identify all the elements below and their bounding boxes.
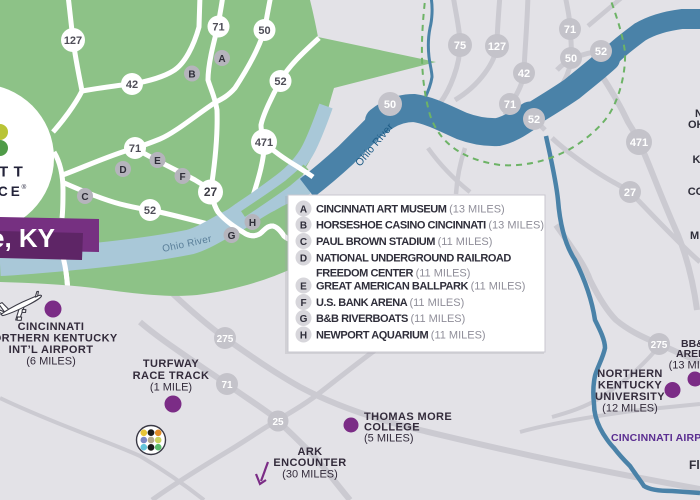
- svg-text:27: 27: [624, 187, 636, 199]
- svg-text:71: 71: [221, 380, 233, 391]
- svg-text:F: F: [179, 172, 185, 183]
- svg-text:OH: OH: [688, 119, 700, 131]
- svg-text:UNIVERSITY: UNIVERSITY: [595, 391, 665, 403]
- svg-text:e, KY: e, KY: [0, 223, 55, 253]
- svg-text:CINCINNATI ART MUSEUM (13 MILE: CINCINNATI ART MUSEUM (13 MILES): [316, 204, 505, 216]
- svg-text:71: 71: [212, 22, 224, 34]
- svg-text:471: 471: [255, 137, 273, 149]
- svg-text:D: D: [300, 254, 307, 265]
- svg-text:(6 MILES): (6 MILES): [26, 356, 76, 368]
- svg-text:50: 50: [384, 99, 396, 111]
- svg-text:52: 52: [144, 205, 156, 217]
- svg-text:CINCINNATI: CINCINNATI: [18, 321, 85, 333]
- svg-text:NORTHERN KENTUCKY: NORTHERN KENTUCKY: [0, 333, 118, 345]
- svg-text:127: 127: [488, 41, 506, 53]
- svg-text:50: 50: [258, 25, 270, 37]
- svg-text:CE: CE: [0, 184, 23, 199]
- svg-text:HORSESHOE CASINO CINCINNATI (1: HORSESHOE CASINO CINCINNATI (13 MILES): [316, 220, 544, 232]
- svg-text:®: ®: [22, 183, 27, 191]
- svg-text:PAUL BROWN STADIUM (11 MILES): PAUL BROWN STADIUM (11 MILES): [316, 236, 492, 248]
- svg-text:B: B: [300, 221, 307, 232]
- svg-text:275: 275: [651, 340, 668, 351]
- svg-text:25: 25: [272, 417, 284, 428]
- svg-text:B&B RIVERBOATS (11 MILES): B&B RIVERBOATS (11 MILES): [316, 313, 465, 325]
- svg-text:CINCINNATI AIRPORT: CINCINNATI AIRPORT: [611, 432, 700, 444]
- svg-text:(12 MILES): (12 MILES): [602, 403, 658, 415]
- svg-text:E: E: [300, 282, 307, 293]
- svg-text:50: 50: [565, 53, 577, 65]
- svg-text:H: H: [249, 218, 256, 229]
- svg-text:A: A: [218, 54, 225, 65]
- svg-text:CO: CO: [688, 186, 700, 198]
- svg-text:TURFWAY: TURFWAY: [143, 358, 199, 370]
- svg-text:KENTUCKY: KENTUCKY: [598, 380, 663, 392]
- svg-text:G: G: [300, 314, 308, 325]
- svg-text:FREEDOM CENTER (11 MILES): FREEDOM CENTER (11 MILES): [316, 268, 470, 280]
- svg-text:71: 71: [504, 99, 516, 111]
- svg-text:52: 52: [595, 46, 607, 58]
- svg-text:G: G: [228, 231, 236, 242]
- svg-text:C: C: [81, 192, 88, 203]
- svg-text:52: 52: [274, 76, 286, 88]
- svg-text:42: 42: [126, 79, 138, 91]
- svg-text:52: 52: [528, 114, 540, 126]
- svg-text:(30 MILES): (30 MILES): [282, 469, 338, 481]
- svg-text:NORTHERN: NORTHERN: [597, 368, 663, 380]
- svg-text:H: H: [300, 331, 307, 342]
- svg-text:E: E: [154, 156, 161, 167]
- svg-text:K: K: [693, 154, 700, 166]
- svg-text:U.S. BANK ARENA (11 MILES): U.S. BANK ARENA (11 MILES): [316, 297, 464, 309]
- svg-text:A: A: [300, 205, 307, 216]
- svg-text:275: 275: [217, 334, 234, 345]
- svg-text:(5 MILES): (5 MILES): [364, 433, 414, 445]
- svg-text:71: 71: [129, 143, 141, 155]
- svg-text:471: 471: [630, 137, 648, 149]
- svg-text:75: 75: [454, 40, 466, 52]
- svg-text:Florence: Florence: [689, 458, 700, 472]
- svg-text:(1 MILE): (1 MILE): [150, 382, 192, 394]
- svg-text:D: D: [119, 165, 126, 176]
- svg-text:ENCOUNTER: ENCOUNTER: [273, 457, 346, 469]
- svg-text:42: 42: [518, 68, 530, 80]
- svg-text:NATIONAL UNDERGROUND RAILROAD: NATIONAL UNDERGROUND RAILROAD: [316, 253, 511, 265]
- svg-text:127: 127: [64, 35, 82, 47]
- svg-text:71: 71: [564, 24, 576, 36]
- svg-text:M: M: [690, 230, 699, 242]
- svg-text:27: 27: [204, 185, 218, 199]
- svg-text:TT: TT: [0, 164, 28, 181]
- svg-text:NEWPORT AQUARIUM (11 MILES): NEWPORT AQUARIUM (11 MILES): [316, 330, 486, 342]
- svg-text:GREAT AMERICAN BALLPARK (11 MI: GREAT AMERICAN BALLPARK (11 MILES): [316, 281, 525, 293]
- svg-text:B: B: [188, 70, 195, 81]
- svg-text:RACE TRACK: RACE TRACK: [133, 370, 210, 382]
- svg-text:(13 MILES): (13 MILES): [669, 360, 700, 372]
- svg-text:F: F: [300, 298, 306, 309]
- svg-text:INT’L AIRPORT: INT’L AIRPORT: [9, 344, 94, 356]
- svg-text:ARENA: ARENA: [676, 348, 700, 360]
- svg-text:C: C: [300, 237, 307, 248]
